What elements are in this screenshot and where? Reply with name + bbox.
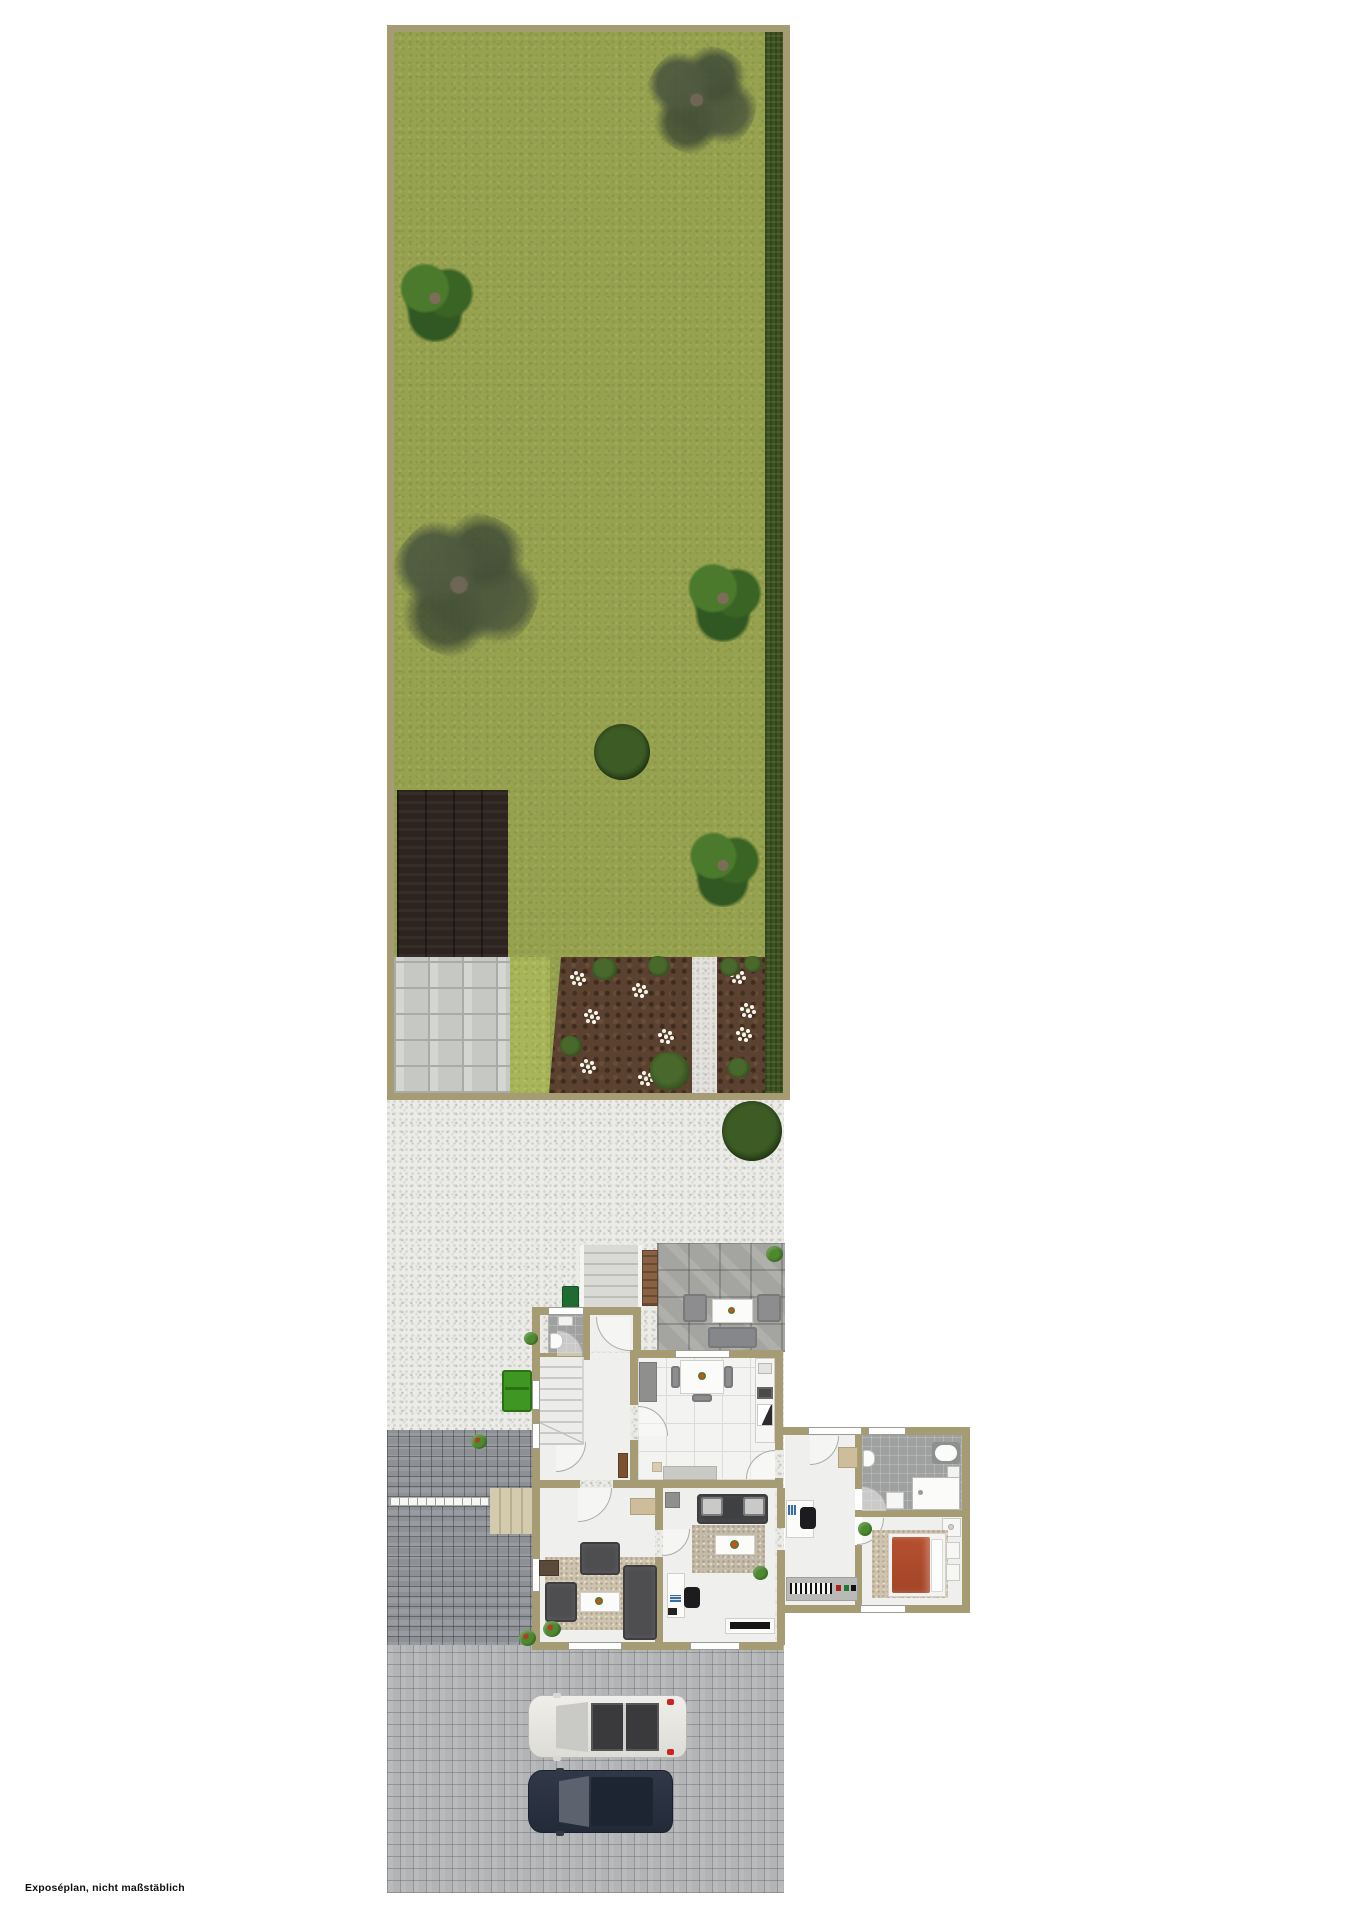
window: [568, 1642, 622, 1650]
tv-flatscreen: [730, 1622, 770, 1629]
kitchen-sink: [758, 1363, 772, 1374]
wall: [633, 1307, 641, 1354]
flower-cluster: [582, 1008, 602, 1025]
wing-entry-door: [808, 1427, 862, 1435]
small-green-bin: [562, 1286, 579, 1309]
bed-shrub: [592, 958, 618, 980]
terrace-armchair: [683, 1294, 707, 1322]
green-waste-bin-lid: [505, 1387, 529, 1390]
bed-shrub: [648, 956, 670, 976]
dining-chair: [692, 1394, 712, 1402]
leafy-bright-tree: [683, 827, 763, 907]
wing-laptop: [788, 1505, 796, 1515]
entrance-stairs-rail-left: [580, 1245, 584, 1307]
driveway-pavement: [387, 1645, 784, 1893]
study-plant: [753, 1566, 768, 1580]
shower-drain: [918, 1490, 923, 1495]
bath-toilet: [863, 1450, 875, 1467]
study-laptop: [670, 1595, 681, 1602]
wing-doormat: [838, 1447, 858, 1468]
wall: [613, 1480, 783, 1488]
living-sofa: [623, 1565, 657, 1640]
bath-cabinet: [886, 1492, 904, 1509]
wall: [777, 1488, 785, 1528]
study-table-flowers: [730, 1540, 739, 1549]
leafy-dark-tree: [681, 558, 765, 642]
wall: [777, 1550, 785, 1645]
window: [532, 1380, 540, 1410]
window: [868, 1427, 906, 1435]
gravel-bush: [722, 1101, 782, 1161]
terrace-table-flowers: [728, 1307, 735, 1314]
staircase-curve: [540, 1420, 584, 1446]
bed-shrub-large: [650, 1052, 690, 1090]
bed-duvet: [892, 1537, 930, 1593]
outdoor-flower-pot: [519, 1630, 536, 1646]
bedroom-dresser-knob: [948, 1524, 954, 1530]
side-entrance-stoop: [490, 1488, 532, 1534]
side-door: [532, 1423, 540, 1449]
large-scraggly-tree: [390, 512, 540, 658]
bed-shrub: [560, 1036, 582, 1056]
wall: [775, 1350, 783, 1450]
window: [860, 1605, 906, 1613]
terrace-bench: [642, 1250, 658, 1306]
study-corner-cabinet: [665, 1492, 680, 1508]
wall: [775, 1478, 783, 1488]
dining-side-table: [652, 1462, 662, 1472]
window: [675, 1350, 730, 1358]
white-suv-windshield: [556, 1702, 588, 1752]
bathtub-basin: [935, 1445, 957, 1461]
terrace-plant: [766, 1246, 783, 1262]
white-suv: [528, 1695, 687, 1758]
wall: [583, 1307, 590, 1360]
garden-hedge: [765, 32, 783, 1093]
white-suv-taillight: [667, 1749, 674, 1755]
flower-cluster: [738, 1002, 758, 1019]
wing-plant: [858, 1522, 872, 1536]
white-suv-taillight: [667, 1699, 674, 1705]
hall-cabinet: [618, 1453, 628, 1478]
wing-office-chair: [800, 1507, 816, 1529]
wc-sink: [558, 1316, 573, 1326]
exposeplan-canvas: Exposéplan, nicht maßstäblich: [0, 0, 1357, 1920]
living-side-table: [539, 1560, 559, 1576]
dark-blue-car: [528, 1770, 673, 1833]
terrace-loveseat: [708, 1327, 757, 1348]
leafy-tree: [393, 258, 477, 342]
white-suv-mirror: [553, 1693, 561, 1698]
bed-pillows: [931, 1539, 943, 1592]
bed-gravel-path: [692, 957, 717, 1093]
kitchen-dishwasher-open: [757, 1404, 773, 1426]
wc-toilet: [550, 1333, 563, 1349]
flower-cluster: [734, 1026, 754, 1043]
bed-shrub: [744, 956, 762, 972]
window: [548, 1307, 584, 1315]
living-armchair: [545, 1582, 577, 1622]
plan-caption: Exposéplan, nicht maßstäblich: [25, 1882, 185, 1894]
study-printer: [668, 1608, 677, 1615]
bed-shrub: [728, 1058, 750, 1078]
dark-car-mirror: [556, 1768, 564, 1773]
living-table-decor: [595, 1597, 603, 1605]
dark-car-windshield: [559, 1776, 589, 1827]
scraggly-dark-tree: [645, 45, 757, 155]
wall: [630, 1350, 638, 1405]
dining-chair: [671, 1366, 680, 1388]
terrace-armchair: [757, 1294, 781, 1322]
living-armchair: [580, 1542, 620, 1575]
wall: [962, 1427, 970, 1613]
dining-bench: [663, 1466, 717, 1480]
kitchen-stove: [757, 1387, 773, 1399]
living-sideboard: [630, 1498, 656, 1515]
flower-cluster: [578, 1058, 598, 1075]
white-suv-mirror: [553, 1756, 561, 1761]
study-office-chair: [684, 1587, 700, 1608]
wood-deck: [397, 790, 508, 957]
outdoor-flower-pot: [543, 1621, 561, 1637]
nightstand: [946, 1542, 960, 1559]
dining-chair: [724, 1366, 733, 1388]
wing-shelf-items: [836, 1585, 841, 1591]
dark-paver-yard: [387, 1430, 533, 1647]
flower-cluster: [656, 1028, 676, 1045]
study-chair: [743, 1497, 765, 1516]
nightstand: [946, 1564, 960, 1581]
dining-table-flowers: [698, 1372, 706, 1380]
flower-cluster: [630, 982, 650, 999]
lawn-strip: [510, 957, 550, 1093]
wing-shelf-books: [790, 1583, 832, 1594]
flower-cluster: [568, 970, 588, 987]
study-chair: [701, 1497, 723, 1516]
wall: [532, 1480, 580, 1488]
wall: [532, 1307, 540, 1650]
dark-car-mirror: [556, 1831, 564, 1836]
green-waste-bin: [502, 1370, 532, 1412]
entrance-stairs: [584, 1245, 638, 1307]
dining-sideboard: [639, 1362, 657, 1402]
wall: [855, 1510, 962, 1517]
yard-gate: [389, 1497, 489, 1506]
bed-shrub: [720, 958, 740, 976]
dark-car-roof: [591, 1777, 653, 1826]
stone-path: [394, 957, 510, 1093]
wall: [655, 1488, 663, 1530]
window: [690, 1642, 740, 1650]
outdoor-plant: [524, 1332, 538, 1345]
outdoor-flower-pot: [471, 1434, 487, 1449]
round-bush: [594, 724, 650, 780]
white-suv-roof-divider: [623, 1703, 626, 1751]
